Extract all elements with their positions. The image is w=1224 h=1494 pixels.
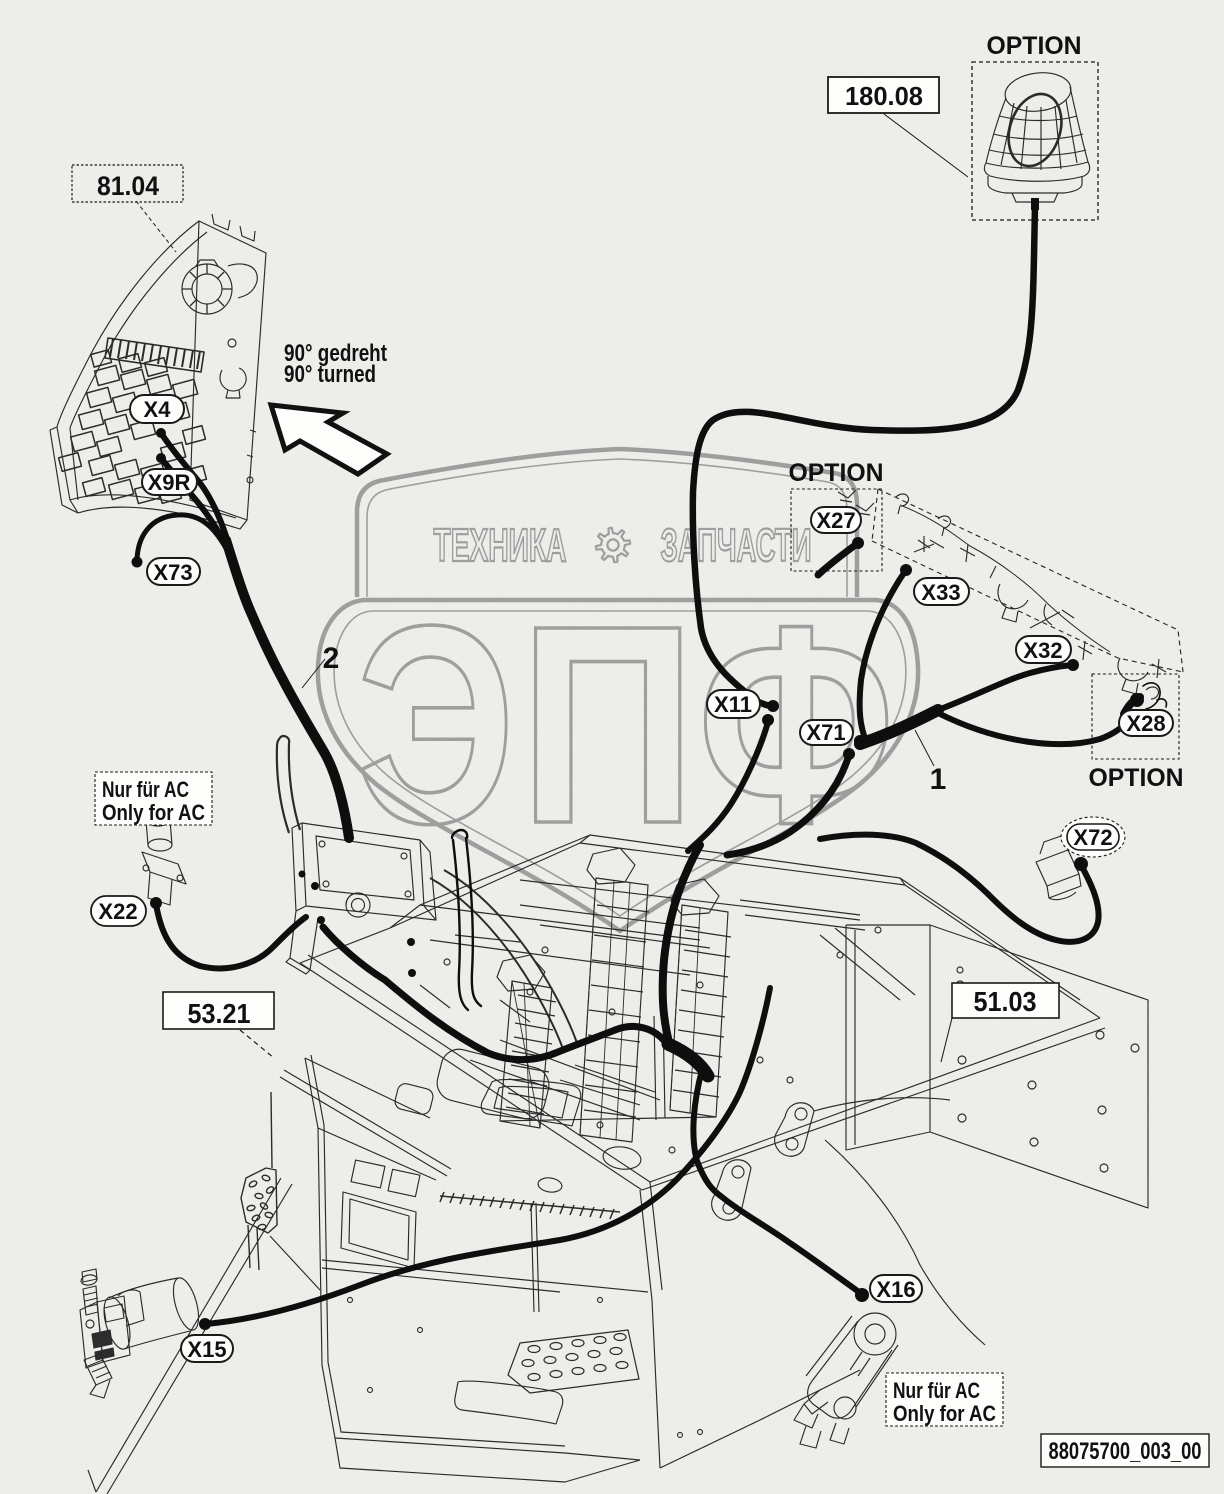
svg-text:Only for AC: Only for AC <box>102 800 205 825</box>
svg-text:1: 1 <box>930 763 947 796</box>
svg-text:180.08: 180.08 <box>845 81 923 111</box>
svg-text:ТЕХНИКА: ТЕХНИКА <box>434 519 567 571</box>
svg-text:X73: X73 <box>153 560 192 585</box>
svg-text:OPTION: OPTION <box>789 459 884 487</box>
svg-text:X28: X28 <box>1126 711 1165 736</box>
svg-text:2: 2 <box>323 642 340 675</box>
svg-text:Nur für AC: Nur für AC <box>893 1378 980 1403</box>
svg-text:ЗАПЧАСТИ: ЗАПЧАСТИ <box>661 519 812 571</box>
svg-text:X33: X33 <box>921 580 960 605</box>
svg-text:X11: X11 <box>714 692 752 717</box>
svg-text:X72: X72 <box>1073 825 1112 850</box>
svg-text:X71: X71 <box>806 720 845 745</box>
svg-text:X16: X16 <box>876 1277 915 1302</box>
svg-text:X27: X27 <box>816 508 855 533</box>
svg-text:X22: X22 <box>98 899 137 924</box>
svg-text:Nur für AC: Nur für AC <box>102 777 189 802</box>
svg-text:OPTION: OPTION <box>1089 764 1184 792</box>
svg-text:X32: X32 <box>1023 638 1062 663</box>
svg-text:X4: X4 <box>144 397 172 422</box>
svg-text:53.21: 53.21 <box>188 998 251 1029</box>
svg-text:88075700_003_00: 88075700_003_00 <box>1049 1438 1202 1465</box>
svg-text:П: П <box>519 568 696 883</box>
svg-text:X9R: X9R <box>148 470 191 495</box>
svg-text:81.04: 81.04 <box>97 171 159 201</box>
svg-text:90° turned: 90° turned <box>284 361 376 388</box>
svg-text:51.03: 51.03 <box>974 986 1037 1017</box>
svg-text:Only for AC: Only for AC <box>893 1401 996 1426</box>
svg-text:X15: X15 <box>187 1337 226 1362</box>
svg-text:OPTION: OPTION <box>987 32 1082 60</box>
